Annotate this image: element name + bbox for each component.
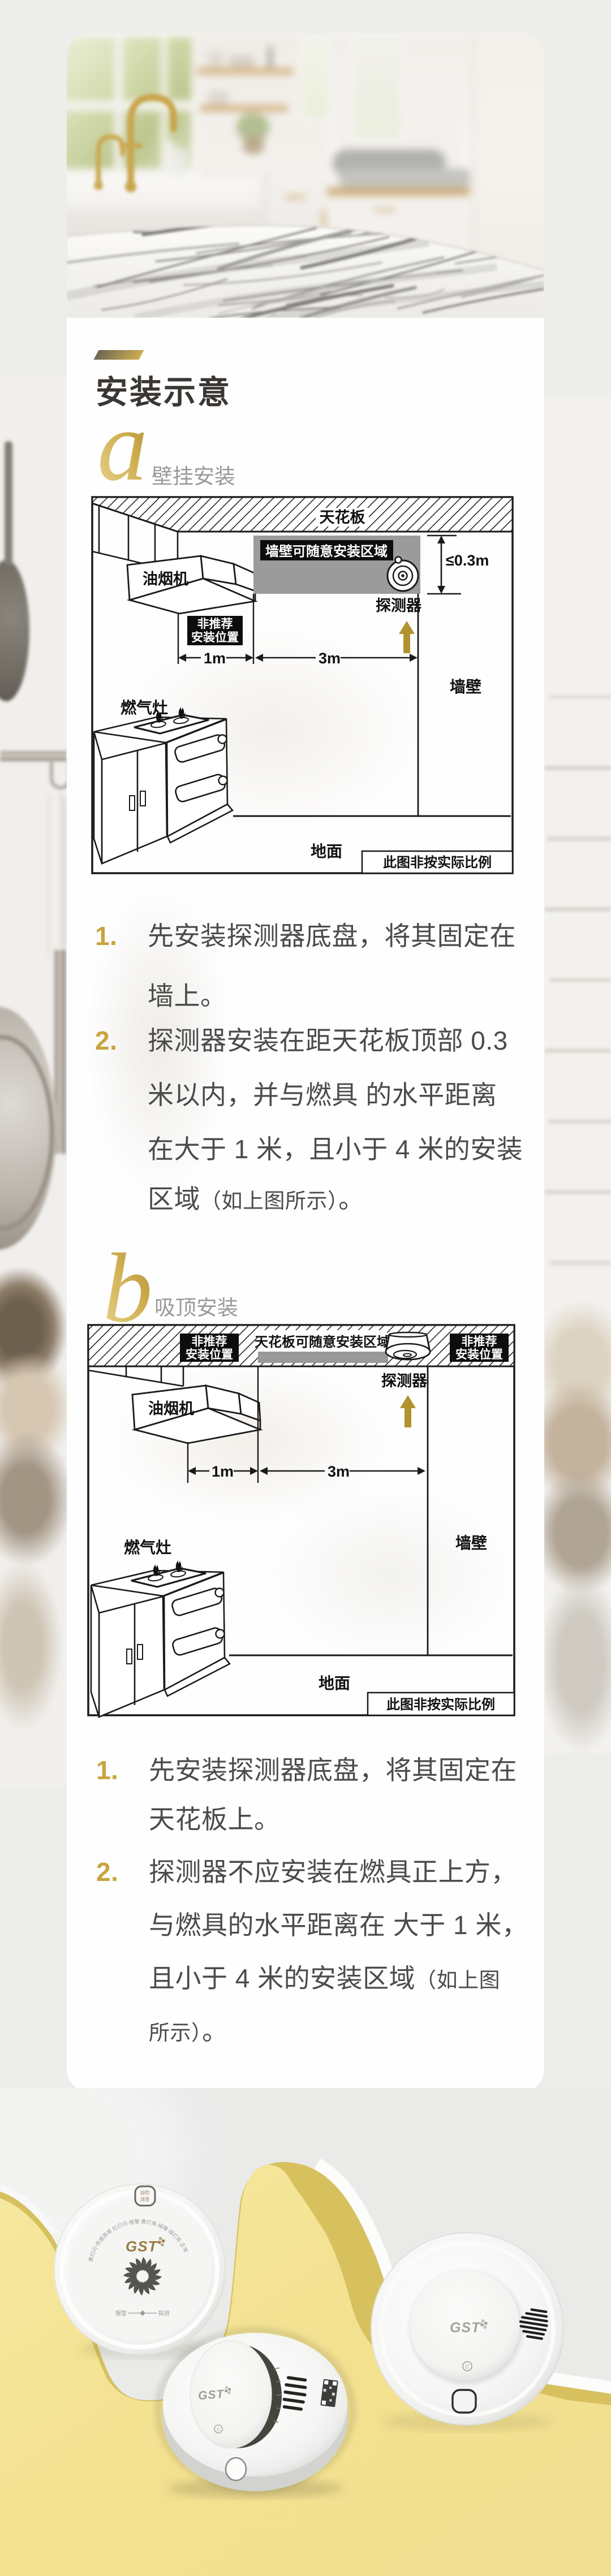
svg-text:3m: 3m [328,1463,350,1480]
svg-text:此图非按实际比例: 此图非按实际比例 [383,855,492,870]
svg-text:天花板可随意安装区域: 天花板可随意安装区域 [255,1334,390,1350]
svg-text:墙壁: 墙壁 [450,678,481,696]
svg-text:探测器: 探测器 [376,597,422,614]
svg-text:1m: 1m [204,650,226,667]
svg-text:报警 ━━◆━━ 探测: 报警 ━━◆━━ 探测 [115,2310,170,2317]
svg-text:此图非按实际比例: 此图非按实际比例 [386,1697,495,1712]
svg-text:GST: GST [197,2388,225,2402]
svg-text:探测器: 探测器 [381,1373,428,1390]
svg-text:非推荐: 非推荐 [192,1335,227,1348]
svg-text:GST: GST [450,2320,481,2336]
svg-text:地面: 地面 [319,1675,350,1692]
svg-text:a: a [97,390,148,492]
svg-text:非推荐: 非推荐 [197,617,233,631]
svg-text:b: b [103,1233,153,1329]
svg-text:墙壁: 墙壁 [455,1534,487,1552]
svg-text:消音: 消音 [140,2197,150,2202]
svg-text:墙壁可随意安装区域: 墙壁可随意安装区域 [265,543,388,559]
svg-text:天花板: 天花板 [320,509,365,526]
svg-text:自检: 自检 [140,2190,150,2195]
svg-text:C: C [217,2427,220,2432]
svg-text:1m: 1m [212,1463,234,1480]
svg-text:非推荐: 非推荐 [462,1335,497,1348]
svg-text:GST: GST [126,2238,158,2255]
svg-text:油烟机: 油烟机 [143,571,188,588]
svg-text:油烟机: 油烟机 [148,1400,194,1417]
svg-text:3m: 3m [319,650,341,667]
svg-text:地面: 地面 [311,843,342,860]
svg-text:燃气灶: 燃气灶 [124,1539,171,1556]
svg-text:安装位置: 安装位置 [455,1348,503,1361]
svg-text:C: C [466,2364,470,2370]
svg-text:安装位置: 安装位置 [186,1348,233,1361]
svg-text:≤0.3m: ≤0.3m [446,552,489,569]
svg-text:安装位置: 安装位置 [191,631,239,644]
